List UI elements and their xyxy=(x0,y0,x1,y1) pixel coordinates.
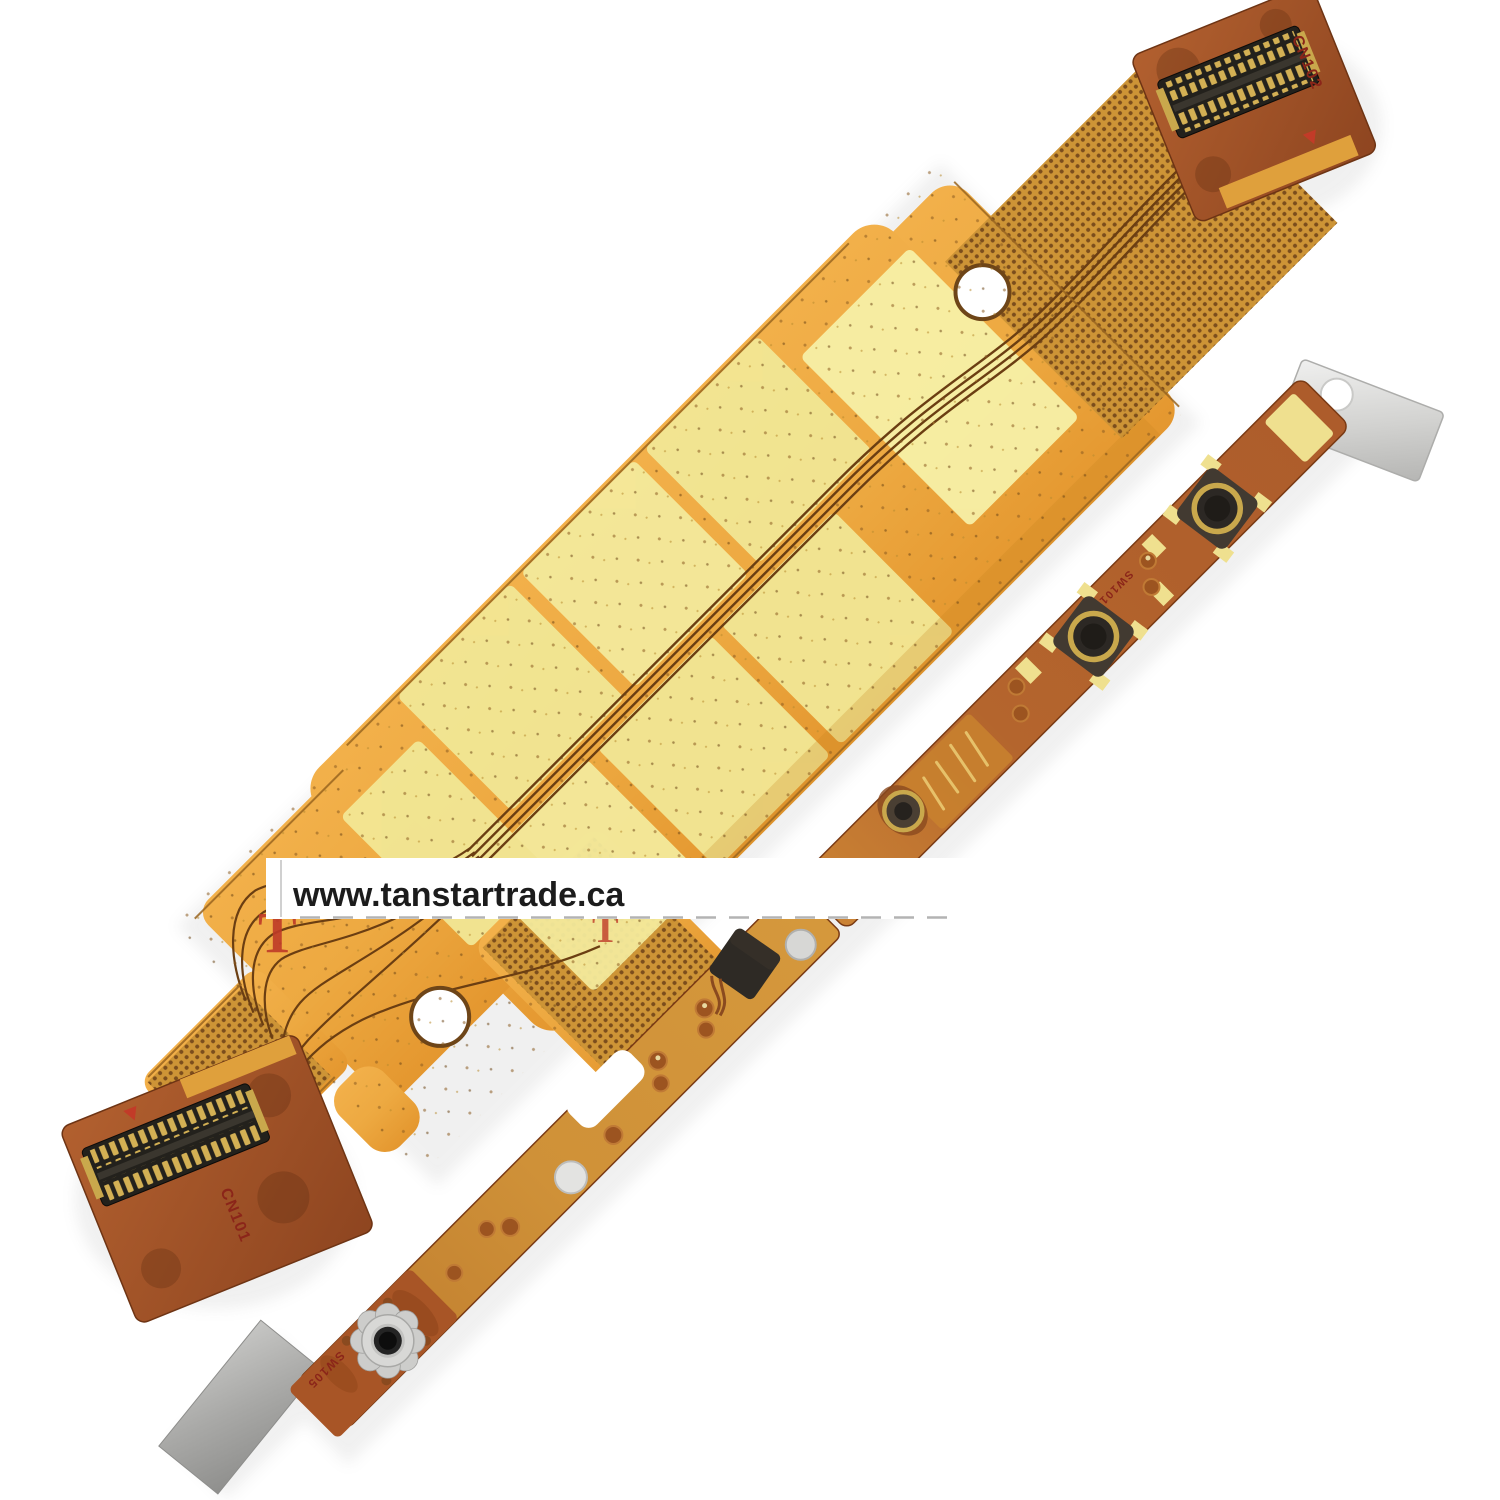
watermark-banner: www.tanstartrade.ca xyxy=(266,858,1163,919)
product-photo-canvas: SW101 xyxy=(0,0,1500,1500)
watermark-url: www.tanstartrade.ca xyxy=(292,876,625,914)
flex-cable-photo: SW101 xyxy=(0,0,1500,1500)
